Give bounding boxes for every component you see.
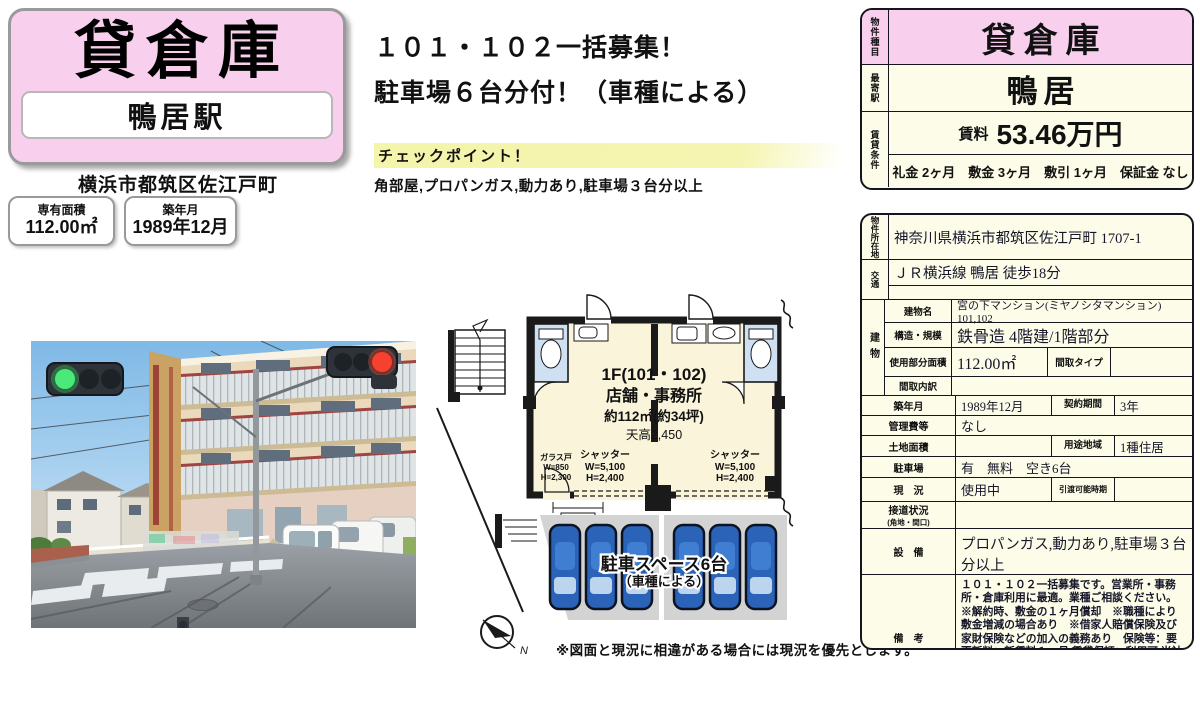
property-type-card: 貸倉庫 鴨居駅: [8, 8, 346, 165]
break-marks: [781, 300, 793, 526]
building-name-value: 宮の下マンション(ミヤノシタマンション) 101,102: [952, 300, 1192, 322]
area-chip-label: 専有面積: [37, 203, 85, 217]
svg-text:H=2,400: H=2,400: [586, 473, 625, 484]
access-value: ＪＲ横浜線 鴨居 徒歩18分: [889, 260, 1192, 286]
svg-text:W=850: W=850: [543, 463, 569, 472]
madori-type-value: [1111, 348, 1192, 376]
mgmt-value: なし: [956, 416, 1192, 435]
building-group-label: 建物: [862, 300, 885, 395]
detail-table: 物件所在地 神奈川県横浜市都筑区佐江戸町 1707-1 交通 ＪＲ横浜線 鴨居 …: [860, 213, 1194, 650]
svg-text:（車種による）: （車種による）: [619, 574, 710, 589]
handover-label: 引渡可能時期: [1052, 478, 1115, 501]
boundary-line: [437, 408, 523, 612]
equipment-value: プロパンガス,動力あり,駐車場３台分以上: [956, 529, 1192, 574]
parking-caption: 駐車スペース6台 （車種による）: [601, 554, 727, 589]
shutter-right-label: シャッター: [710, 449, 760, 461]
contract-value: 3年: [1115, 396, 1192, 415]
built-chip-value: 1989年12月: [132, 217, 228, 239]
svg-text:駐車スペース6台: 駐車スペース6台: [601, 554, 727, 574]
property-flyer: 貸倉庫 鴨居駅 横浜市都筑区佐江戸町 専有面積 112.00㎡ 築年月 1989…: [0, 0, 1200, 701]
plan-area: 約112㎡(約34坪): [604, 408, 704, 424]
summary-station-label: 最寄駅: [862, 65, 889, 111]
status-value: 使用中: [956, 478, 1052, 501]
plan-ceiling: 天高2,450: [626, 427, 682, 442]
built-label: 築年月: [862, 396, 956, 415]
structure-value: 鉄骨造 4階建/1階部分: [952, 323, 1192, 347]
madori-detail-label: 間取内訳: [885, 377, 952, 395]
small-signal: [177, 617, 189, 628]
area-chip: 専有面積 112.00㎡: [8, 196, 115, 246]
zoning-label: 用途地域: [1052, 436, 1115, 456]
summary-table: 物件種目 貸倉庫 最寄駅 鴨居 賃貸条件 賃料 53.46万円 礼金 2ヶ月 敷…: [860, 8, 1194, 190]
road-label: 接道状況 (角地・間口): [862, 502, 956, 528]
rent-value: 53.46万円: [996, 113, 1122, 153]
summary-type-value: 貸倉庫: [889, 10, 1192, 64]
status-label: 現 況: [862, 478, 956, 501]
checkpoint-band: チェックポイント！: [374, 143, 846, 168]
traffic-light-left: [47, 363, 123, 395]
headline: １０１・１０２一括募集！ 駐車場６台分付！（車種による）: [374, 26, 854, 116]
svg-text:W=5,100: W=5,100: [585, 462, 626, 473]
land-label: 土地面積: [862, 436, 956, 456]
property-type-title: 貸倉庫: [64, 21, 290, 83]
access-label: 交通: [862, 260, 889, 299]
used-area-label: 使用部分面積: [885, 348, 952, 376]
floor-plan: 1F(101・102) 店舗・事務所 約112㎡(約34坪) 天高2,450 ガ…: [435, 280, 855, 670]
remarks-label: 備 考: [862, 575, 956, 650]
checkpoint-label: チェックポイント！: [374, 145, 531, 166]
built-chip-label: 築年月: [162, 203, 198, 217]
svg-text:H=2,400: H=2,400: [716, 473, 755, 484]
structure-label: 構造・規模: [885, 323, 952, 347]
station-box: 鴨居駅: [21, 91, 333, 139]
parking-value: 有 無料 空き6台: [956, 457, 1192, 477]
shutter-left-label: シャッター: [580, 449, 630, 461]
north-arrow-icon: N: [481, 616, 528, 657]
building-name-label: 建物名: [885, 300, 952, 322]
stairs: [448, 320, 505, 402]
built-chip: 築年月 1989年12月: [124, 196, 237, 246]
sink-left-bowl: [579, 327, 597, 338]
plan-subtitle: 店舗・事務所: [606, 386, 702, 405]
plan-title: 1F(101・102): [602, 365, 707, 384]
used-area-value: 112.00㎡: [952, 348, 1048, 376]
mgmt-label: 管理費等: [862, 416, 956, 435]
zoning-value: 1種住居: [1115, 436, 1192, 456]
remarks-value: １０１・１０２一括募集です。営業所・事務所・倉庫利用に最適。業種ご相談ください。…: [956, 575, 1192, 650]
station-name: 鴨居駅: [127, 94, 226, 136]
built-value: 1989年12月: [956, 396, 1052, 415]
headline-line-2: 駐車場６台分付！（車種による）: [374, 71, 854, 116]
summary-station-value: 鴨居: [889, 65, 1192, 111]
svg-text:W=5,100: W=5,100: [715, 462, 756, 473]
madori-type-label: 間取タイプ: [1048, 348, 1111, 376]
land-value: [956, 436, 1052, 456]
sink-right: [672, 324, 740, 343]
rent-label: 賃料: [958, 123, 988, 144]
summary-terms-label: 賃貸条件: [862, 112, 889, 187]
lease-terms: 礼金 2ヶ月 敷金 3ヶ月 敷引 1ヶ月 保証金 なし: [889, 155, 1192, 187]
location-label: 物件所在地: [862, 215, 889, 259]
equipment-label: 設 備: [862, 529, 956, 574]
glass-door-label: ガラス戸: [540, 452, 572, 462]
headline-line-1: １０１・１０２一括募集！: [374, 26, 854, 71]
svg-text:N: N: [520, 645, 528, 657]
parking-lot: 駐車スペース6台 （車種による）: [495, 514, 787, 620]
contract-label: 契約期間: [1052, 396, 1115, 415]
parking-label: 駐車場: [862, 457, 956, 477]
madori-detail-value: [952, 377, 1192, 395]
svg-text:H=2,300: H=2,300: [541, 473, 572, 482]
checkpoint-text: 角部屋,プロパンガス,動力あり,駐車場３台分以上: [374, 175, 703, 196]
property-address: 横浜市都筑区佐江戸町: [8, 170, 348, 197]
road-value: [956, 502, 1192, 528]
area-chip-value: 112.00㎡: [25, 217, 97, 239]
property-photo: [31, 341, 416, 628]
road: [31, 543, 416, 628]
summary-type-label: 物件種目: [862, 10, 889, 64]
handover-value: [1115, 478, 1192, 501]
location-value: 神奈川県横浜市都筑区佐江戸町 1707-1: [889, 215, 1192, 259]
